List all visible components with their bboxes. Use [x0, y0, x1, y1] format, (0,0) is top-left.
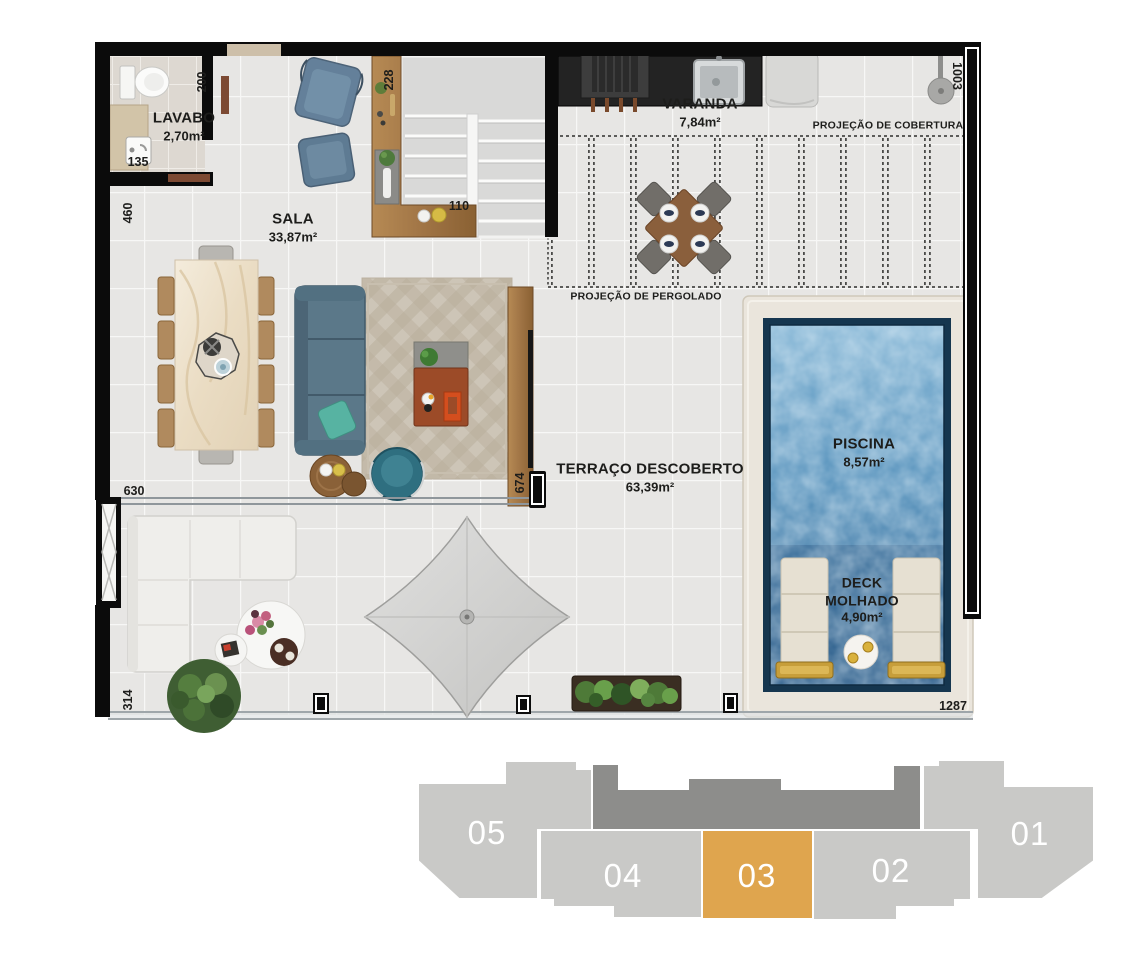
lavabo-door	[221, 76, 229, 114]
keyplan-core-shape	[592, 764, 921, 830]
dimension-460: 460	[121, 203, 137, 224]
planter-box	[572, 676, 681, 711]
dimension-200: 200	[195, 72, 211, 93]
keyplan-unit-01-label[interactable]: 01	[1011, 815, 1050, 853]
dimension-110: 110	[449, 199, 469, 215]
room-label-deck-molhado: DECK MOLHADO 4,90m²	[812, 574, 912, 625]
left-wall-window	[96, 497, 121, 608]
dimension-314: 314	[121, 690, 137, 711]
dimension-630: 630	[124, 484, 145, 500]
living-area	[295, 278, 533, 506]
dimension-135: 135	[128, 155, 149, 171]
projection-pergolado-label: PROJEÇÃO DE PERGOLADO	[570, 290, 721, 303]
terrace-plant	[167, 659, 241, 733]
room-label-sala: SALA 33,87m²	[269, 211, 317, 246]
keyplan-unit-02-label[interactable]: 02	[872, 852, 911, 890]
keyplan-unit-04-label[interactable]: 04	[604, 857, 643, 895]
room-label-lavabo: LAVABO 2,70m²	[153, 110, 215, 145]
dimension-228: 228	[382, 70, 398, 91]
floor-plan-page: LAVABO 2,70m² SALA 33,87m² VARANDA 7,84m…	[0, 0, 1140, 954]
outdoor-dining-set	[636, 181, 733, 276]
dimension-1287: 1287	[939, 699, 967, 715]
room-label-varanda: VARANDA 7,84m²	[662, 96, 737, 131]
appliance	[766, 52, 818, 107]
sofa	[295, 286, 365, 455]
keyplan	[418, 760, 1094, 920]
room-label-piscina: PISCINA 8,57m²	[833, 436, 895, 471]
pergola-projection-lines	[548, 136, 967, 287]
armchair	[370, 448, 423, 500]
pool-side-table	[844, 635, 878, 669]
top-wall-opening	[227, 44, 281, 56]
projection-cobertura-label: PROJEÇÃO DE COBERTURA	[813, 119, 964, 132]
dimension-674: 674	[513, 473, 529, 494]
dining-set	[158, 246, 274, 464]
room-label-terraco: TERRAÇO DESCOBERTO 63,39m²	[556, 461, 744, 496]
keyplan-unit-03-label[interactable]: 03	[738, 857, 777, 895]
coffee-table	[414, 342, 468, 426]
keyplan-unit-05-label[interactable]: 05	[468, 814, 507, 852]
dimension-1003: 1003	[948, 62, 964, 90]
